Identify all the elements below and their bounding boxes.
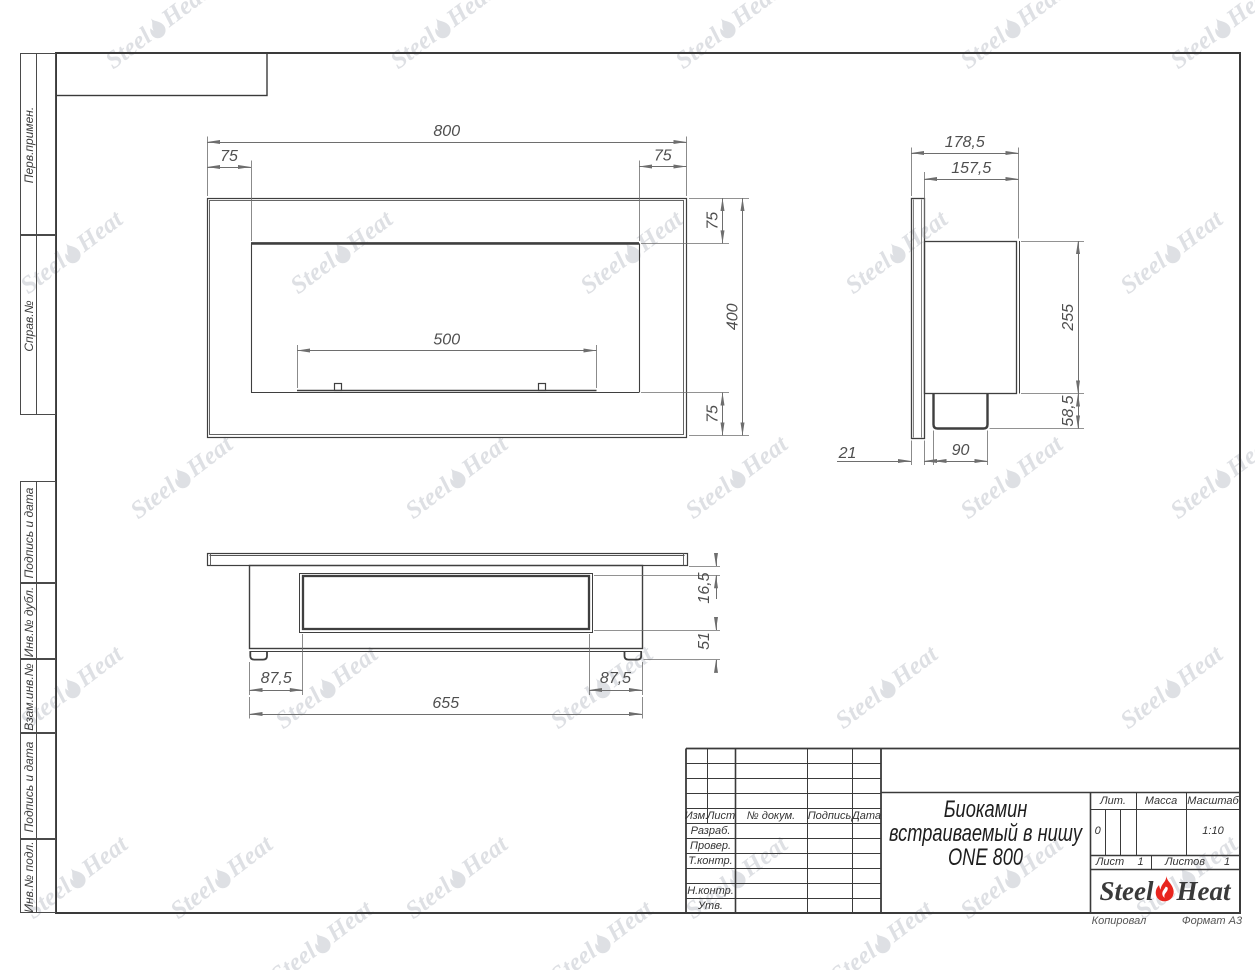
svg-text:255: 255 [1060,304,1077,332]
svg-text:655: 655 [432,695,459,712]
svg-text:51: 51 [696,632,713,650]
svg-text:178,5: 178,5 [945,134,985,151]
svg-text:400: 400 [725,303,742,330]
svg-text:75: 75 [220,148,238,165]
svg-text:157,5: 157,5 [951,160,991,177]
svg-text:75: 75 [705,405,722,423]
svg-text:75: 75 [705,212,722,230]
svg-text:500: 500 [433,332,460,349]
svg-text:90: 90 [952,442,970,459]
svg-text:87,5: 87,5 [600,670,631,687]
svg-text:58,5: 58,5 [1060,395,1077,426]
svg-text:87,5: 87,5 [261,670,292,687]
svg-text:21: 21 [838,445,857,462]
svg-text:800: 800 [433,123,460,140]
svg-text:75: 75 [654,148,672,165]
svg-text:16,5: 16,5 [696,572,713,603]
